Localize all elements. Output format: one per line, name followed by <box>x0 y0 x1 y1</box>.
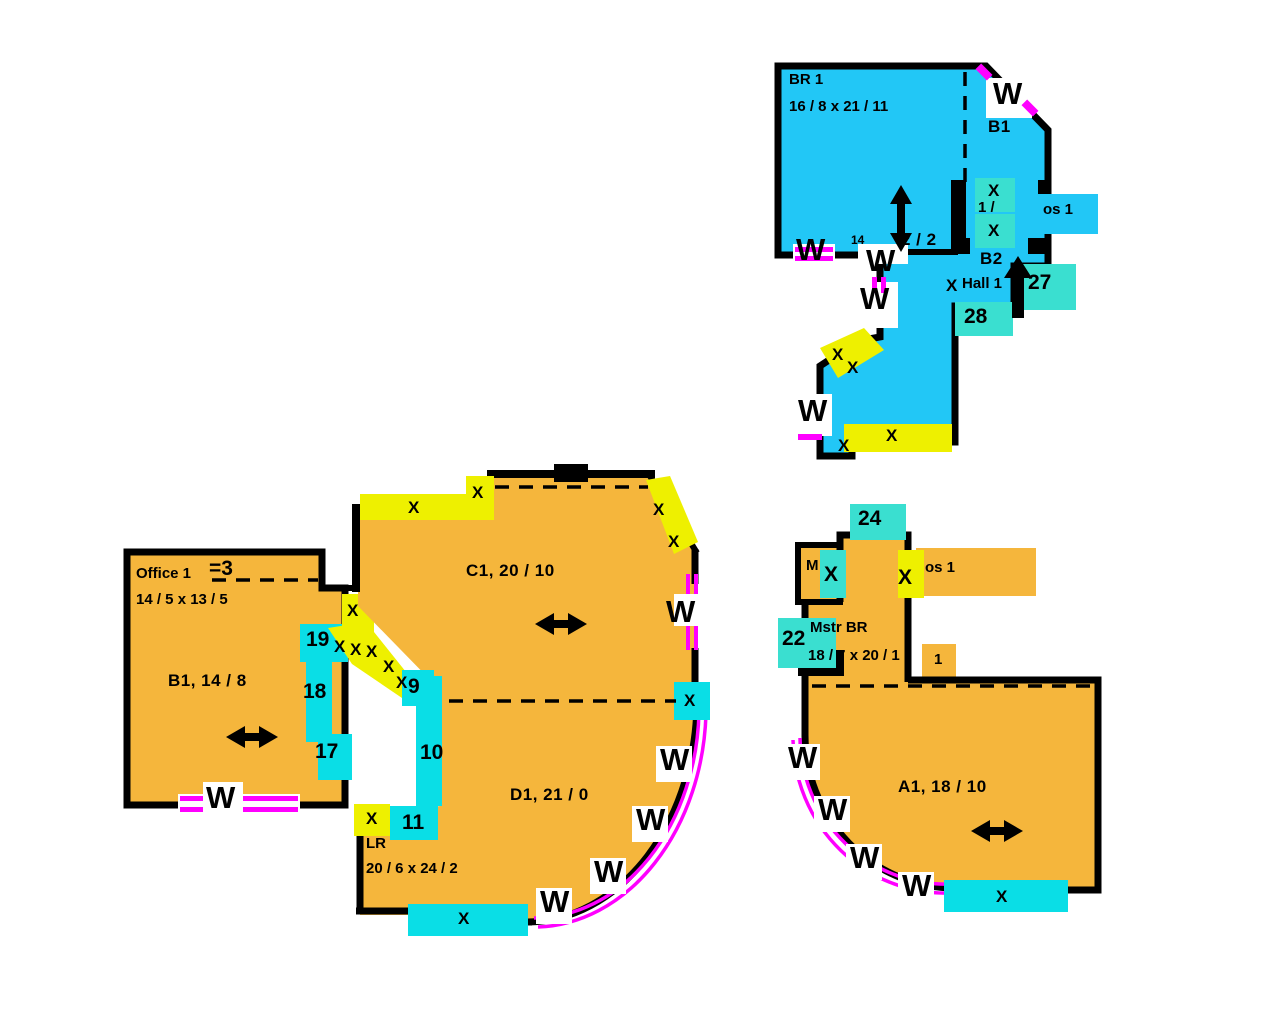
c1-d1-lr-section <box>354 464 710 936</box>
clos2-badge <box>916 548 1036 596</box>
closet-x-badge-1 <box>975 178 1015 212</box>
closet-nub-1 <box>1038 180 1050 194</box>
hall-wall-nub-2 <box>1028 238 1046 254</box>
window-gap-br1-topright <box>986 78 1032 118</box>
c1-top-wall-marker <box>554 464 588 482</box>
window-gap-c1-right <box>674 594 706 626</box>
point-27-badge <box>1020 264 1076 310</box>
yellow-wall-corridor-bottom <box>844 424 952 452</box>
window-bar-corr-1 <box>872 277 877 293</box>
window-gap-arc-2 <box>632 806 668 842</box>
point-24-badge <box>850 504 906 540</box>
cyan-wall-lr-bottom <box>408 904 528 936</box>
window-gap-arc-1 <box>656 746 692 782</box>
point-22-badge <box>778 618 836 668</box>
yellow-wall-c1-corner <box>466 476 494 520</box>
window-gap-corridor-left <box>794 394 832 436</box>
point-17-badge <box>318 734 352 780</box>
window-bar-corr-2 <box>881 277 886 293</box>
closet-x-badge-2 <box>975 214 1015 248</box>
point-28-badge <box>955 302 1013 336</box>
floor-plan-canvas: BR 116 / 8 x 21 / 11B1W142 / 2WW1 /os 1X… <box>0 0 1280 1025</box>
cyan-wall-a1-bottom <box>944 880 1068 912</box>
cyan-wall-10 <box>416 676 442 806</box>
point-1-badge <box>922 644 956 682</box>
window-bar-bl-2 <box>795 256 833 261</box>
cyan-wall-18 <box>306 624 332 742</box>
blue-suite <box>778 64 1098 456</box>
window-gap-arc-4 <box>536 888 572 924</box>
m-closet-x-badge <box>820 550 846 598</box>
mstr-a1-section <box>778 504 1098 912</box>
yellow-badge-lr <box>354 804 390 836</box>
yellow-wall-stub-right <box>898 550 924 598</box>
window-gap-a1-arc-3 <box>846 844 882 880</box>
window-gap-arc-3 <box>590 858 626 894</box>
window-bar-corr-left <box>798 434 822 440</box>
clos1-badge <box>1036 194 1098 234</box>
window-gap-a1-arc-4 <box>898 872 934 908</box>
window-gap-a1-arc-2 <box>814 796 850 832</box>
floor-plan-drawing <box>0 0 1280 1025</box>
cyan-badge-mid-right <box>674 682 710 720</box>
point-11-badge <box>390 806 438 840</box>
window-gap-b1-w <box>203 782 243 816</box>
window-bar-bl-1 <box>795 247 833 252</box>
window-gap-a1-arc-1 <box>784 744 820 780</box>
